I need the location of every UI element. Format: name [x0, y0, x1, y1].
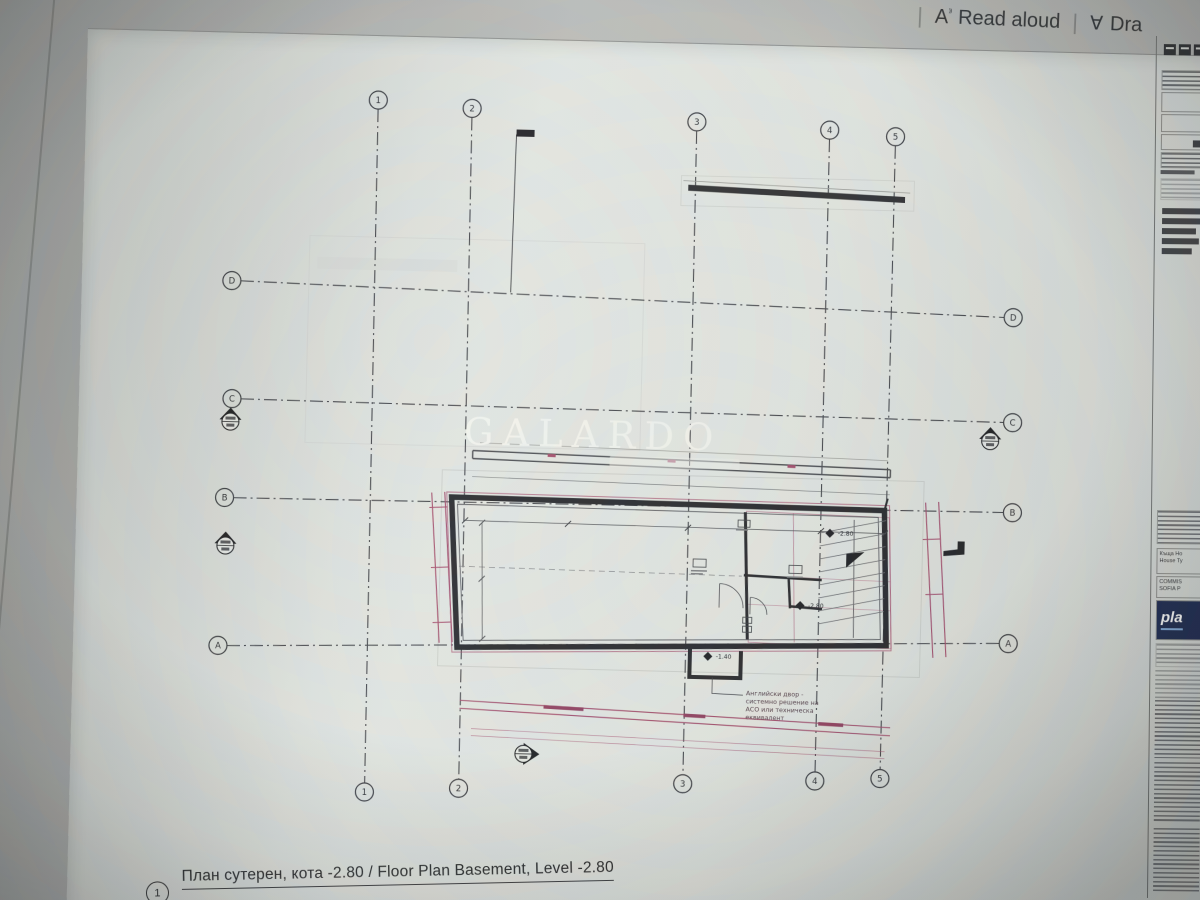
svg-text:2: 2: [469, 104, 475, 114]
floor-plan-drawing: 12345 12345 DCBA DCBA: [37, 28, 1200, 900]
strip-notes: [1154, 700, 1200, 758]
toolbar-divider: |: [917, 3, 924, 29]
english-court: [689, 648, 741, 678]
svg-text:D: D: [1010, 314, 1017, 324]
strip-icon: [1179, 44, 1191, 55]
draw-button[interactable]: ∀ Dra: [1090, 12, 1143, 37]
strip-field: [1161, 114, 1200, 132]
strip-field: [1160, 178, 1200, 200]
svg-text:GALARDO: GALARDO: [464, 410, 723, 459]
svg-text:B: B: [1009, 509, 1015, 519]
corner-marker: [943, 541, 964, 557]
draw-icon: ∀: [1090, 12, 1104, 36]
svg-text:C: C: [229, 395, 235, 405]
svg-text:5: 5: [877, 775, 883, 785]
strip-revision-bars: [1160, 204, 1200, 268]
watermark: GALARDO: [463, 410, 740, 470]
strip-notes: [1154, 762, 1200, 822]
svg-text:B: B: [222, 493, 228, 503]
svg-text:Английски двор -: Английски двор -: [746, 689, 804, 698]
strip-notes: [1155, 670, 1200, 698]
pdf-page: 12345 12345 DCBA DCBA: [65, 28, 1200, 900]
elevation-value: -2.80: [838, 530, 854, 537]
svg-text:3: 3: [680, 780, 686, 790]
flag-marker: [511, 129, 535, 292]
svg-text:4: 4: [812, 777, 818, 787]
svg-text:3: 3: [694, 118, 700, 128]
court-annotation: Английски двор - системно решение на АСО…: [711, 677, 819, 723]
strip-field: [1161, 170, 1195, 174]
strip-field: [1155, 643, 1200, 667]
strip-field: [1161, 70, 1200, 90]
building-walls: [447, 488, 889, 682]
svg-text:D: D: [228, 277, 235, 287]
read-aloud-button[interactable]: A⁾⁾ Read aloud: [934, 5, 1060, 33]
draw-label: Dra: [1110, 13, 1143, 37]
company-logo: pla: [1156, 600, 1200, 640]
elevation-value: -2.80: [808, 603, 824, 610]
strip-field: [1161, 92, 1200, 112]
svg-text:4: 4: [827, 126, 833, 136]
toolbar-divider: |: [1072, 9, 1079, 35]
elevation-value: -1.40: [716, 654, 732, 661]
strip-notes: [1153, 828, 1200, 892]
read-aloud-icon: A⁾⁾: [934, 5, 951, 29]
strip-field: [1161, 152, 1200, 168]
stair-direction-mark: [846, 552, 864, 568]
strip-field: [1161, 134, 1200, 150]
svg-text:1: 1: [362, 788, 368, 798]
read-aloud-label: Read aloud: [958, 6, 1061, 33]
strip-field: [1157, 510, 1200, 544]
title-block-strip: Къща НоHouse Ty COMMISSOFIA P pla: [1147, 36, 1200, 899]
strip-icon: [1194, 44, 1200, 55]
project-name-field: Къща НоHouse Ty: [1156, 548, 1200, 574]
strip-icon: [1164, 44, 1176, 55]
svg-text:A: A: [215, 641, 221, 651]
svg-text:5: 5: [893, 133, 899, 143]
client-field: COMMISSOFIA P: [1156, 576, 1200, 598]
svg-text:еквивалент: еквивалент: [745, 714, 784, 722]
svg-text:A: A: [1005, 640, 1011, 650]
section-markers: [209, 407, 1001, 776]
caption-number: 1: [146, 881, 169, 900]
svg-text:1: 1: [375, 96, 381, 106]
strip-icons: [1162, 42, 1200, 64]
svg-text:C: C: [1010, 419, 1016, 429]
svg-text:2: 2: [456, 784, 462, 794]
screen-photo: | A⁾⁾ Read aloud | ∀ Dra: [0, 0, 1200, 900]
retaining-wall-bar: [683, 181, 910, 204]
